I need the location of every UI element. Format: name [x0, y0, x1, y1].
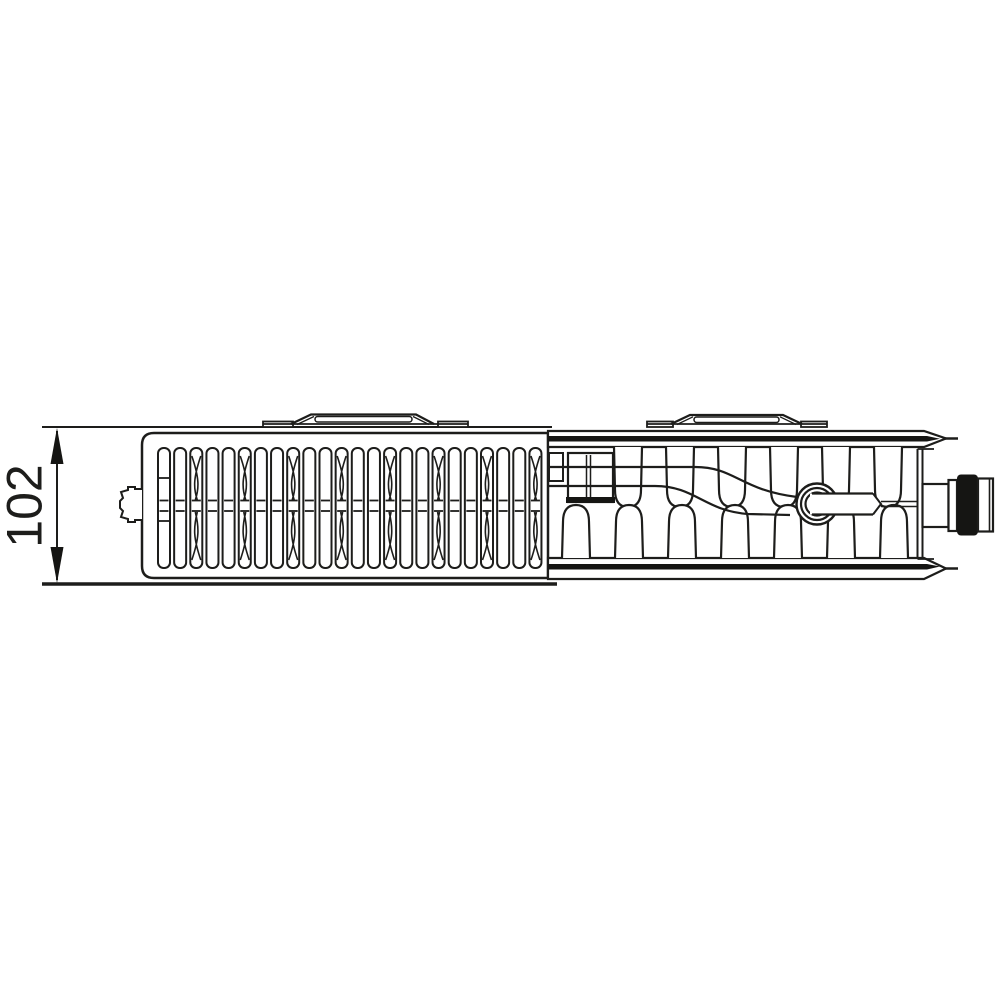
- convector-fin-bottom: [880, 505, 908, 558]
- grille-slat: [287, 448, 299, 568]
- grille-slat: [336, 448, 348, 568]
- grille-slat: [497, 448, 509, 568]
- bracket-left-slot: [315, 417, 412, 423]
- wall-bracket-left: [263, 415, 468, 428]
- convector-fin-top: [666, 447, 694, 507]
- wall-bracket-right: [647, 415, 827, 427]
- radiator-technical-drawing: 102: [0, 0, 1000, 1000]
- convector-fin-bottom: [615, 505, 643, 558]
- grille-slat: [303, 448, 315, 568]
- tailpiece-nipple: [923, 484, 949, 527]
- grille-slat: [384, 448, 396, 568]
- grille-slat: [400, 448, 412, 568]
- convector-fin-top: [770, 447, 798, 507]
- tailpiece-connection: [923, 475, 994, 536]
- grille-slat: [320, 448, 332, 568]
- tailpiece-knurled-nut: [957, 475, 978, 536]
- dimension-arrowhead-bottom: [51, 547, 64, 583]
- convector-fin-top: [718, 447, 746, 507]
- grille-slat: [190, 448, 202, 568]
- convector-fin-top: [614, 447, 642, 507]
- tailpiece-end-cap: [978, 479, 993, 532]
- grille-slat: [529, 448, 541, 568]
- valve-tube-body: [810, 494, 873, 515]
- section-view: [548, 431, 993, 579]
- grille-slat: [223, 448, 235, 568]
- grille-slat: [465, 448, 477, 568]
- grille-slat: [174, 448, 186, 568]
- convector-fin-bottom: [668, 505, 696, 558]
- grille-slat: [368, 448, 380, 568]
- grille-slat: [433, 448, 445, 568]
- dimension-label: 102: [0, 464, 53, 547]
- dimension-arrowhead-top: [51, 428, 64, 464]
- section-bottom-panel-cut: [548, 564, 940, 570]
- grille-slat: [158, 448, 170, 568]
- convector-fin-bottom: [562, 505, 590, 558]
- grille-slat: [481, 448, 493, 568]
- left-plug-fitting: [120, 487, 142, 522]
- grille-slat: [513, 448, 525, 568]
- grille-slat: [271, 448, 283, 568]
- grille-slat: [416, 448, 428, 568]
- section-box-fin-weld: [566, 497, 615, 503]
- grille-slat: [206, 448, 218, 568]
- convector-fin-top: [874, 447, 902, 507]
- radiator-top-view-diagram: 102: [0, 0, 1000, 1000]
- section-top-panel-cut: [548, 436, 940, 442]
- grille-slat: [239, 448, 251, 568]
- grille-slat: [352, 448, 364, 568]
- bracket-right-slot: [694, 417, 779, 423]
- tailpiece-flange: [949, 480, 958, 531]
- grille-slat: [255, 448, 267, 568]
- grille-slat: [449, 448, 461, 568]
